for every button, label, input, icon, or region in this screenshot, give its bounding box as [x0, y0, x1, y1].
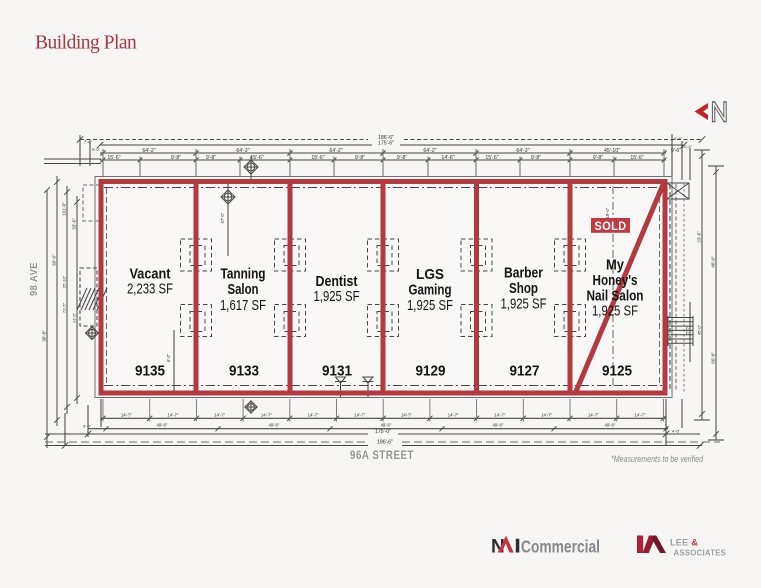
svg-text:161'-0": 161'-0"	[62, 202, 67, 216]
svg-text:9133: 9133	[229, 363, 259, 380]
svg-text:My: My	[606, 258, 625, 274]
svg-text:71'-5": 71'-5"	[62, 302, 67, 313]
svg-text:Barber: Barber	[504, 266, 543, 282]
svg-text:15'-6": 15'-6"	[630, 155, 643, 161]
svg-text:4'-6": 4'-6"	[672, 429, 681, 434]
svg-text:10'-3": 10'-3"	[682, 144, 693, 149]
svg-text:96A STREET: 96A STREET	[350, 450, 414, 462]
svg-text:60'-8": 60'-8"	[711, 352, 716, 364]
svg-text:49'-6": 49'-6"	[381, 423, 392, 428]
svg-text:15'-6": 15'-6"	[311, 155, 324, 161]
svg-text:33'-6": 33'-6"	[72, 218, 77, 230]
svg-text:1,925 SF: 1,925 SF	[501, 297, 547, 313]
svg-text:14'-7": 14'-7"	[308, 412, 319, 417]
svg-text:15'-6": 15'-6"	[107, 155, 120, 161]
svg-text:9'-8": 9'-8"	[171, 155, 181, 161]
svg-text:14'-7": 14'-7"	[494, 412, 505, 417]
svg-text:14'-7": 14'-7"	[588, 412, 599, 417]
svg-text:175'-0": 175'-0"	[375, 429, 391, 435]
svg-text:9'-8": 9'-8"	[206, 155, 216, 161]
svg-text:14'-7": 14'-7"	[261, 412, 272, 417]
svg-text:9127: 9127	[510, 363, 540, 380]
svg-text:Commercial: Commercial	[521, 537, 600, 557]
svg-text:14'-7": 14'-7"	[448, 412, 459, 417]
svg-text:14'-6": 14'-6"	[441, 155, 454, 161]
svg-text:2,233 SF: 2,233 SF	[127, 282, 173, 298]
svg-text:9135: 9135	[135, 363, 165, 380]
svg-text:9'-6": 9'-6"	[674, 136, 683, 141]
svg-text:Tanning: Tanning	[221, 267, 266, 283]
svg-text:14'-7": 14'-7"	[401, 412, 412, 417]
svg-text:15'-6": 15'-6"	[485, 155, 498, 161]
svg-text:6'-2": 6'-2"	[166, 353, 171, 362]
svg-text:5'-0": 5'-0"	[92, 147, 101, 152]
svg-text:60'-0": 60'-0"	[52, 254, 57, 266]
svg-text:5'-0": 5'-0"	[83, 424, 92, 429]
svg-text:186'-6": 186'-6"	[377, 440, 393, 446]
svg-text:LGS: LGS	[416, 267, 444, 283]
svg-text:64'-2": 64'-2"	[516, 148, 529, 154]
svg-text:Dentist: Dentist	[316, 274, 358, 290]
svg-text:9125: 9125	[602, 363, 632, 380]
svg-text:9'-8": 9'-8"	[397, 155, 407, 161]
svg-text:14'-7": 14'-7"	[541, 412, 552, 417]
svg-text:1,617 SF: 1,617 SF	[220, 298, 266, 314]
svg-text:1,925 SF: 1,925 SF	[407, 298, 453, 314]
svg-text:1,925 SF: 1,925 SF	[592, 304, 638, 320]
svg-text:1,925 SF: 1,925 SF	[314, 289, 360, 305]
svg-text:64'-2": 64'-2"	[329, 148, 342, 154]
svg-text:45'-0": 45'-0"	[697, 324, 702, 335]
svg-text:ASSOCIATES: ASSOCIATES	[674, 549, 727, 558]
svg-text:175'-6": 175'-6"	[378, 140, 394, 146]
svg-text:Honey's: Honey's	[593, 273, 638, 289]
svg-text:9'-8": 9'-8"	[593, 155, 603, 161]
svg-text:SOLD: SOLD	[595, 219, 627, 233]
svg-text:Vacant: Vacant	[130, 267, 171, 283]
svg-text:9131: 9131	[322, 363, 352, 380]
svg-text:9'-8": 9'-8"	[531, 155, 541, 161]
svg-text:45'-10": 45'-10"	[604, 148, 620, 154]
svg-text:14'-7": 14'-7"	[168, 412, 179, 417]
svg-text:25'-10": 25'-10"	[62, 275, 67, 288]
svg-text:Nail Salon: Nail Salon	[587, 289, 644, 305]
svg-text:19'-0": 19'-0"	[605, 207, 610, 218]
svg-text:64'-2": 64'-2"	[423, 148, 436, 154]
svg-text:Building Plan: Building Plan	[35, 33, 137, 54]
svg-text:Salon: Salon	[228, 282, 259, 298]
svg-text:64'-2": 64'-2"	[236, 148, 249, 154]
svg-text:15'-6": 15'-6"	[250, 155, 263, 161]
svg-text:7'-6": 7'-6"	[84, 140, 93, 145]
svg-text:90'-8": 90'-8"	[42, 330, 47, 342]
svg-text:Gaming: Gaming	[409, 283, 452, 299]
svg-text:40'-0": 40'-0"	[711, 256, 716, 268]
svg-text:13'-5": 13'-5"	[72, 312, 77, 323]
svg-text:49'-6": 49'-6"	[493, 423, 504, 428]
svg-text:98 AVE: 98 AVE	[28, 262, 40, 296]
svg-text:49'-6": 49'-6"	[157, 423, 168, 428]
svg-text:5'-5": 5'-5"	[686, 326, 690, 334]
svg-text:Shop: Shop	[509, 281, 538, 297]
svg-text:9129: 9129	[416, 363, 446, 380]
svg-text:23'-6": 23'-6"	[697, 231, 702, 243]
svg-text:LEE &: LEE &	[670, 538, 698, 548]
svg-text:9'-8": 9'-8"	[355, 155, 365, 161]
svg-text:14'-7": 14'-7"	[121, 412, 132, 417]
svg-text:64'-2": 64'-2"	[142, 148, 155, 154]
svg-text:14'-7": 14'-7"	[214, 412, 225, 417]
svg-text:57'-0": 57'-0"	[220, 212, 225, 223]
svg-text:14'-7": 14'-7"	[635, 412, 646, 417]
svg-text:49'-6": 49'-6"	[605, 423, 616, 428]
svg-text:*Measurements to be verified: *Measurements to be verified	[611, 454, 704, 465]
svg-text:49'-6": 49'-6"	[269, 423, 280, 428]
svg-text:14'-7": 14'-7"	[354, 412, 365, 417]
